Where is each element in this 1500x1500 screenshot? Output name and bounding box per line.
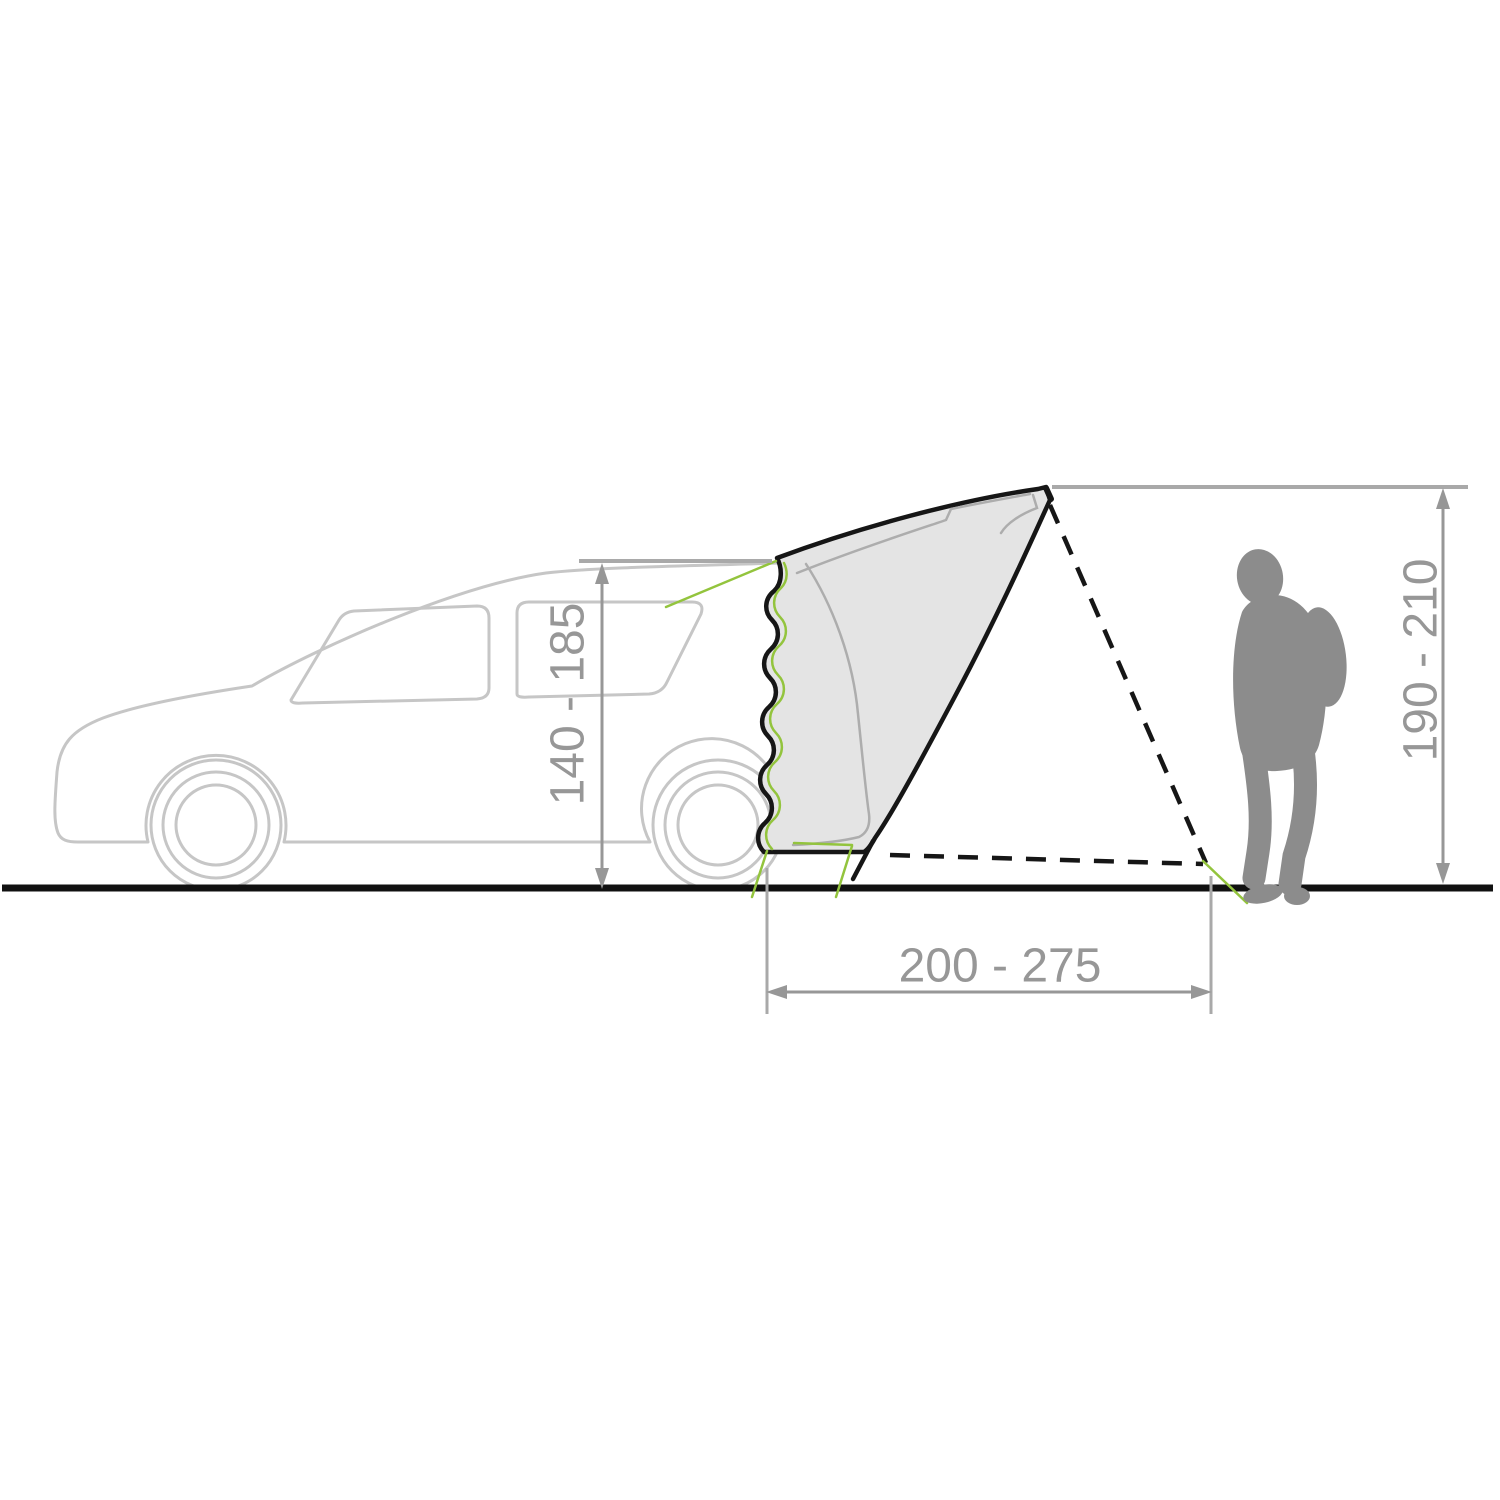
dimension-label-car-height: 140 - 185 <box>542 603 595 806</box>
dimension-label-tent-height: 190 - 210 <box>1395 559 1448 762</box>
person-silhouette <box>1232 545 1351 907</box>
person-front-leg <box>1253 748 1260 878</box>
tent-body <box>758 487 1050 852</box>
person-back-foot <box>1284 887 1310 905</box>
dimension-right-arrow-top <box>1436 488 1450 509</box>
roof-strap-green-line <box>666 561 776 607</box>
person-back-leg <box>1290 750 1306 884</box>
guy-line-dashed-lower <box>890 855 1203 864</box>
rear-wheel-hub <box>678 785 758 865</box>
dimension-diagram: 140 - 185 190 - 210 200 - 275 <box>0 0 1500 1500</box>
diagram-canvas: 140 - 185 190 - 210 200 - 275 <box>0 0 1500 1500</box>
car-front-wheel <box>151 760 281 890</box>
dimension-left-arrow-top <box>595 563 609 584</box>
dimension-bottom-arrow-left <box>766 985 787 999</box>
car-silhouette <box>55 563 783 890</box>
dimension-right-arrow-bottom <box>1436 863 1450 884</box>
dimension-label-tent-depth: 200 - 275 <box>899 940 1102 993</box>
dimension-bottom-arrow-right <box>1191 985 1212 999</box>
guy-line-dashed-upper <box>1050 505 1206 863</box>
front-wheel-hub <box>176 785 256 865</box>
tailgate-tent <box>758 487 1051 879</box>
